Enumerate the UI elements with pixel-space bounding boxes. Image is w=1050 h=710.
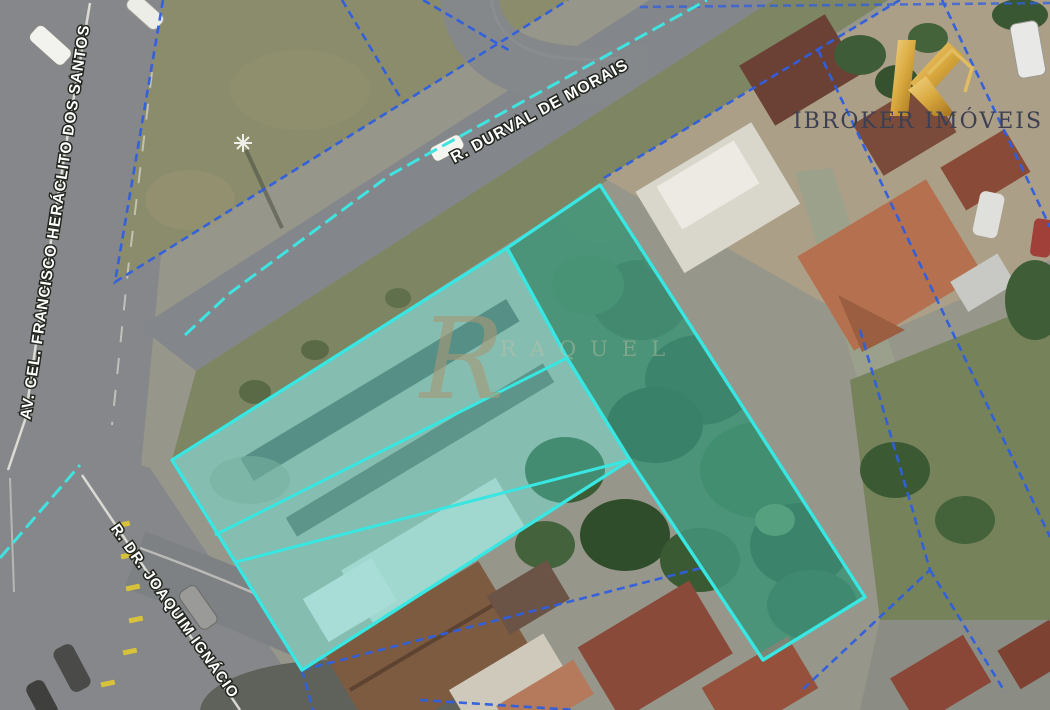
brand-logo-text: IBROKER IMÓVEIS [793, 107, 1043, 134]
watermark-monogram: R [418, 295, 504, 425]
satellite-map: R. DURVAL DE MORAIS AV. CEL. FRANCISCO H… [0, 0, 1050, 710]
watermark-name: RAQUEL [500, 337, 679, 361]
aerial-lot-map: R. DURVAL DE MORAIS AV. CEL. FRANCISCO H… [0, 0, 1050, 710]
